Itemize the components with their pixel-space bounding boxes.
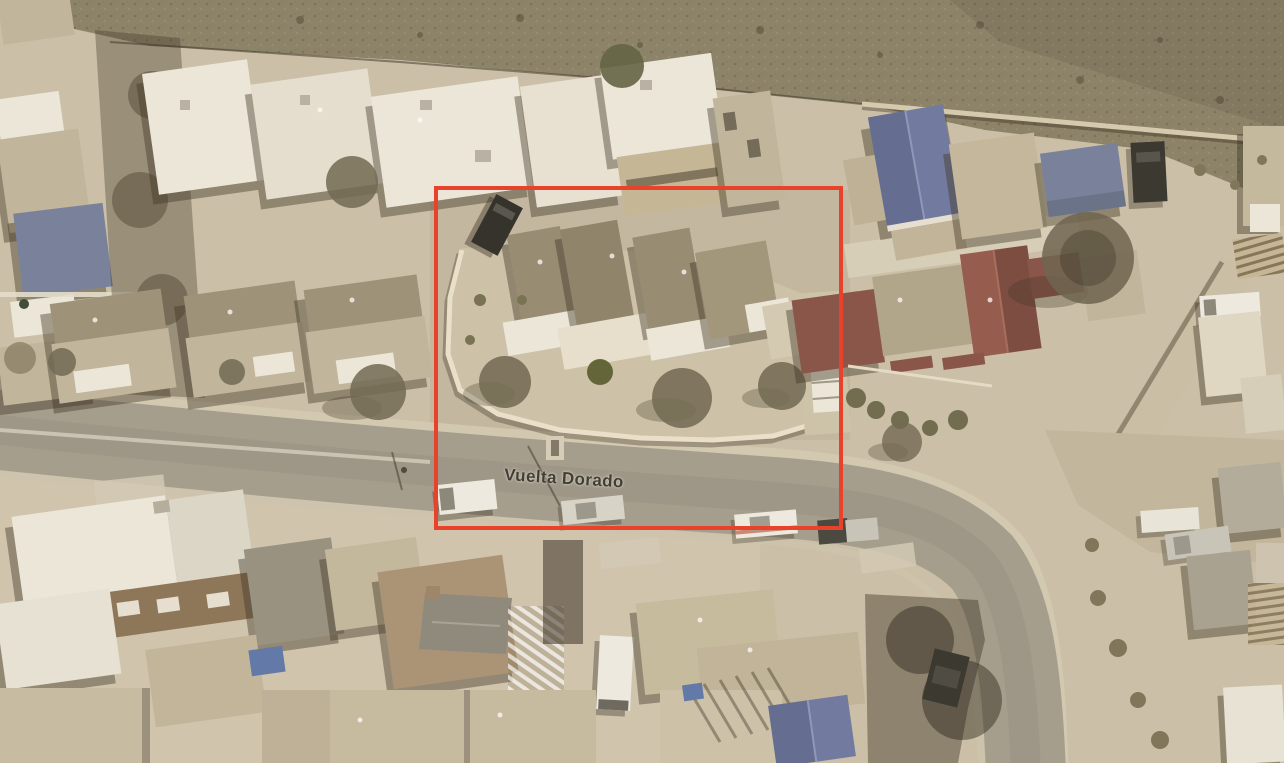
photo-tint xyxy=(0,0,1284,763)
aerial-map-view[interactable]: Vuelta Dorado xyxy=(0,0,1284,763)
aerial-photo-scene xyxy=(0,0,1284,763)
